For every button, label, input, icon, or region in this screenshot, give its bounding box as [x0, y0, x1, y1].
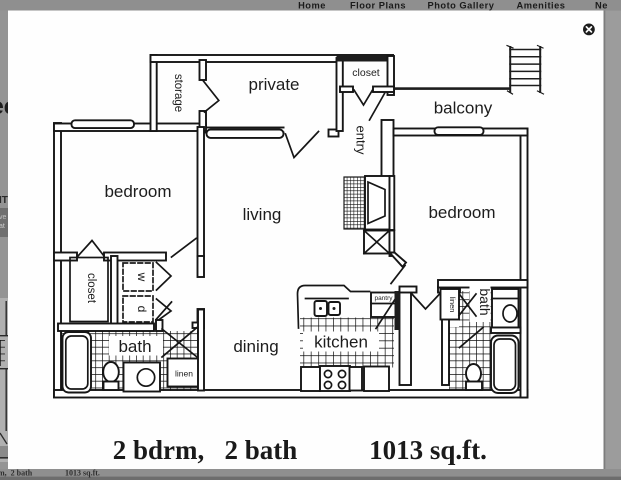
svg-text:storage: storage — [172, 74, 184, 112]
svg-text:d: d — [135, 306, 149, 313]
svg-text:balcony: balcony — [434, 99, 493, 118]
svg-text:Home: Home — [298, 1, 326, 11]
svg-text:kitchen: kitchen — [314, 333, 368, 352]
svg-text:1013 sq.ft.: 1013 sq.ft. — [65, 469, 100, 478]
svg-text:IT: IT — [0, 195, 8, 206]
svg-text:bath: bath — [118, 337, 151, 356]
svg-text:linen: linen — [175, 369, 193, 379]
svg-text:dining: dining — [233, 337, 278, 356]
svg-text:Floor Plans: Floor Plans — [350, 1, 406, 11]
svg-text:bedroom: bedroom — [428, 203, 495, 222]
svg-text:linen: linen — [448, 297, 457, 313]
svg-text:1013 sq.ft.: 1013 sq.ft. — [369, 435, 487, 465]
svg-text:bath: bath — [477, 288, 493, 315]
svg-text:Ne: Ne — [595, 1, 608, 11]
svg-text:pantry: pantry — [374, 295, 393, 302]
svg-text:private: private — [248, 75, 299, 94]
svg-text:Photo Gallery: Photo Gallery — [428, 1, 495, 11]
svg-text:bedroom: bedroom — [104, 182, 171, 201]
svg-text:closet: closet — [85, 273, 97, 304]
svg-text:ve: ve — [0, 214, 7, 221]
svg-text:living: living — [243, 205, 282, 224]
svg-text:entry: entry — [354, 126, 369, 155]
svg-text:Amenities: Amenities — [517, 1, 566, 11]
svg-text:m, 2 bath: m, 2 bath — [0, 469, 33, 478]
svg-text:at: at — [0, 223, 5, 230]
svg-text:w: w — [135, 272, 149, 282]
svg-text:closet: closet — [352, 67, 380, 79]
svg-text:2 bdrm, 2 bath: 2 bdrm, 2 bath — [113, 435, 298, 465]
